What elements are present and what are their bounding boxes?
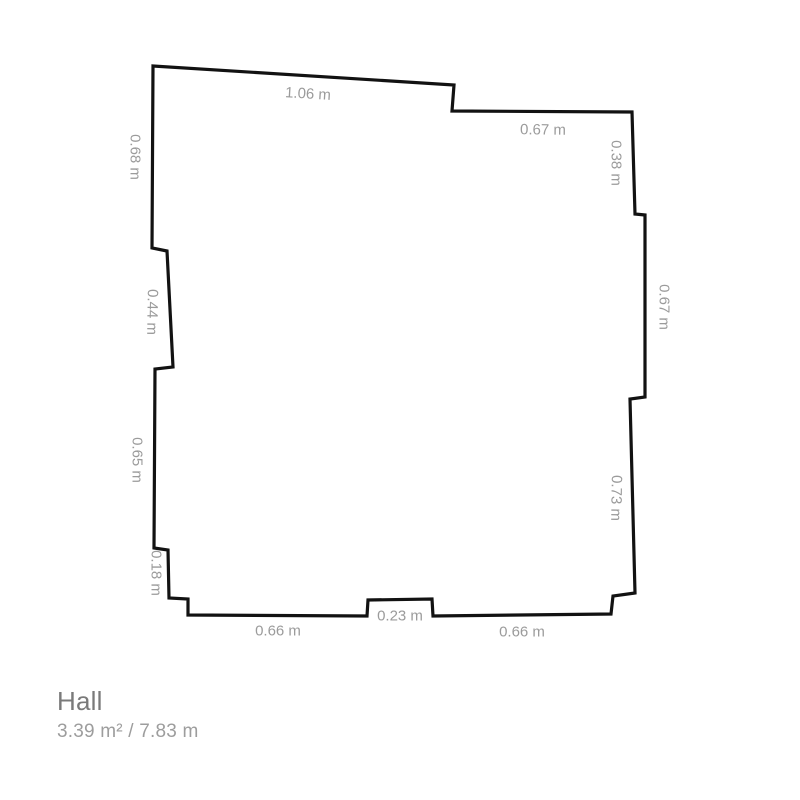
dimension-label: 0.38 m — [609, 140, 624, 186]
room-stats: 3.39 m² / 7.83 m — [57, 721, 199, 743]
dimension-label: 0.66 m — [255, 624, 301, 639]
dimension-label: 1.06 m — [285, 85, 332, 103]
dimension-label: 0.68 m — [128, 134, 143, 180]
floorplan-outline — [0, 0, 800, 800]
floorplan-canvas: 1.06 m0.67 m0.38 m0.67 m0.73 m0.66 m0.23… — [0, 0, 800, 800]
dimension-label: 0.65 m — [130, 437, 145, 483]
dimension-label: 0.23 m — [377, 609, 423, 624]
room-outline-polygon — [152, 66, 645, 616]
dimension-label: 0.67 m — [657, 284, 672, 330]
dimension-label: 0.66 m — [499, 625, 545, 640]
room-info: Hall 3.39 m² / 7.83 m — [57, 686, 199, 743]
dimension-label: 0.44 m — [144, 289, 160, 335]
dimension-label: 0.67 m — [520, 122, 566, 137]
dimension-label: 0.73 m — [608, 475, 624, 521]
dimension-label: 0.18 m — [149, 550, 164, 596]
room-name: Hall — [57, 686, 199, 717]
